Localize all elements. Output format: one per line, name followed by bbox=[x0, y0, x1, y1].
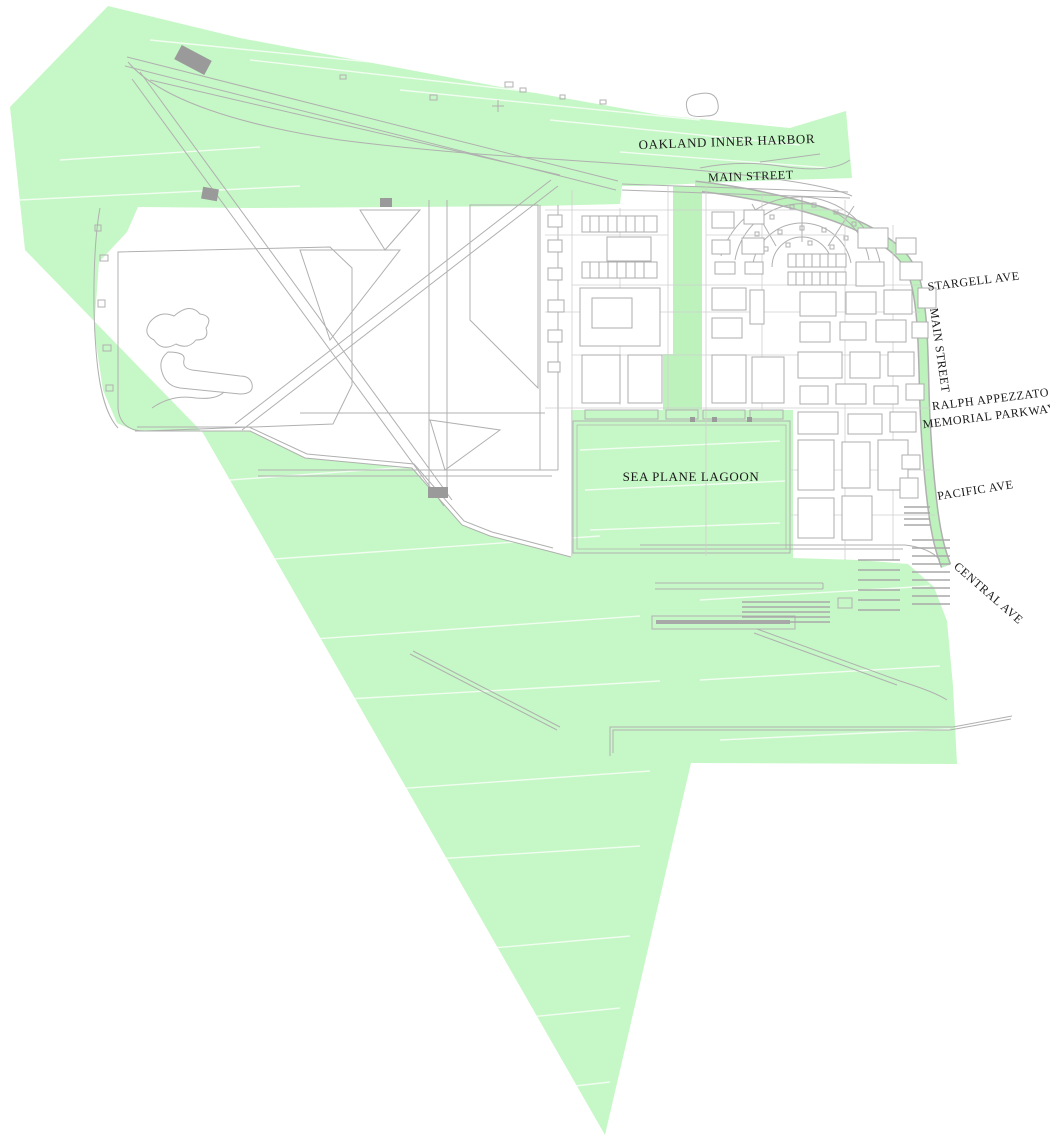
pond-blob-2 bbox=[161, 352, 252, 394]
green-main-polygon bbox=[10, 6, 957, 1135]
label-main-street-top: MAIN STREET bbox=[708, 168, 794, 185]
green-overlay-layer bbox=[10, 6, 957, 1135]
site-map-canvas: OAKLAND INNER HARBOR MAIN STREET STARGEL… bbox=[0, 0, 1050, 1144]
label-sea-plane-lagoon: SEA PLANE LAGOON bbox=[623, 469, 760, 484]
pond-blob-1 bbox=[147, 308, 209, 347]
label-pacific-ave: PACIFIC AVE bbox=[936, 477, 1014, 503]
apron-outlines bbox=[300, 205, 538, 470]
label-main-street-east: MAIN STREET bbox=[927, 307, 953, 394]
runway-vertical bbox=[429, 200, 447, 487]
central-corridor-upper bbox=[673, 186, 702, 354]
central-corridor-lower bbox=[663, 354, 702, 410]
label-central-ave: CENTRAL AVE bbox=[951, 559, 1026, 627]
site-map: OAKLAND INNER HARBOR MAIN STREET STARGEL… bbox=[0, 0, 1050, 1144]
label-stargell-ave: STARGELL AVE bbox=[927, 268, 1021, 293]
taxiways bbox=[258, 205, 558, 476]
runway-diag-b bbox=[235, 180, 558, 430]
